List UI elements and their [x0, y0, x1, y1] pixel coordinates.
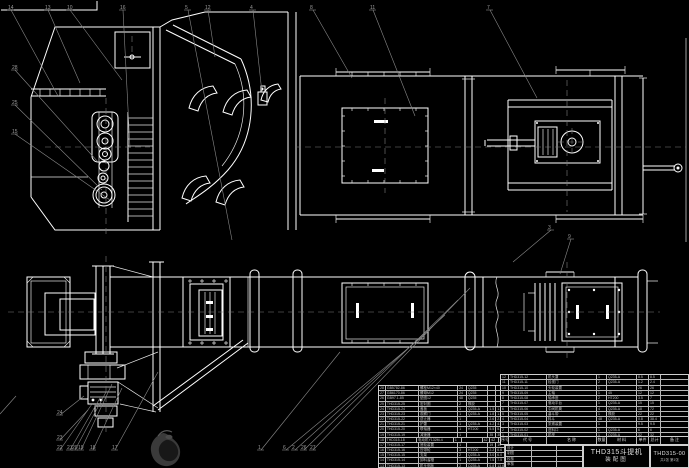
bom-cell-w2: 6 [649, 428, 661, 432]
bom-cell-qty: 1 [597, 375, 607, 379]
bom-cell-name: 料斗 [547, 417, 597, 421]
bom-cell-material: Q235 [467, 391, 488, 395]
bom-cell-w1: 7.5 [488, 458, 496, 462]
middle-casing [300, 68, 643, 223]
bom-cell-w2: 7.5 [496, 458, 505, 462]
bom-cell-w2: 12 [649, 391, 661, 395]
bom-cell-qty: 2 [597, 396, 607, 400]
callout-number: 27 [310, 445, 316, 451]
bom-cell-w2: 13.6 [496, 464, 505, 468]
bom-cell-w1: 5.5 [488, 427, 496, 431]
bom-cell-name: 螺母M12 [419, 391, 458, 395]
callout-leader [70, 10, 122, 80]
bom-cell-w1 [488, 386, 496, 390]
callout-leader [188, 10, 232, 240]
bom-header: 序号代 号名 称数量材 料单件总计备 注 [501, 437, 688, 444]
callout-number: 26 [301, 445, 307, 451]
callout-number: 15 [12, 129, 18, 135]
bom-cell-remark [661, 428, 688, 432]
plan-flanges [250, 270, 647, 352]
callout-leader [373, 10, 415, 116]
signature-blank [557, 462, 582, 467]
bom-cell-code: THD315-08 [509, 396, 547, 400]
bom-cell-w1: 42 [483, 438, 491, 442]
bom-header-cell: 单件 [637, 437, 649, 444]
callout-number: 3 [548, 225, 551, 231]
bom-cell-qty: 1 [458, 458, 467, 462]
bom-cell-w2: 6.6 [496, 448, 505, 452]
bom-header-cell: 总计 [649, 437, 661, 444]
bom-cell-w1: 9.5 [637, 422, 649, 426]
bom-cell-w1: 6 [637, 428, 649, 432]
plan-casing [92, 262, 164, 412]
bom-cell-code: THD315-21 [386, 422, 419, 426]
bom-cell-seq: 26 [379, 396, 386, 400]
bom-cell-remark [661, 417, 688, 421]
callout-number: 17 [112, 445, 118, 451]
bom-cell-w1 [488, 391, 496, 395]
bom-cell-remark [661, 401, 688, 405]
bom-cell-seq: 27 [379, 391, 386, 395]
callout-number: 6 [283, 445, 286, 451]
callout-leader [513, 230, 551, 262]
bom-cell-name: 驱动平台 [547, 401, 597, 405]
bom-cell-code: THD315-12 [509, 375, 547, 379]
bom-cell-seq: 10 [501, 386, 509, 390]
bom-cell-seq: 9 [501, 391, 509, 395]
plan-mid-panel [342, 283, 428, 343]
callout-number: 24 [57, 410, 63, 416]
bom-cell-material: Q235 [467, 396, 488, 400]
bom-cell-w2: 38.4 [649, 417, 661, 421]
bom-header-cell: 备 注 [661, 437, 688, 444]
bom-cell-name: 进料口 [547, 428, 597, 432]
door-hinge [374, 120, 388, 123]
bom-cell-code: THD315-22 [386, 417, 419, 421]
bom-cell-w2: 22 [649, 412, 661, 416]
bom-cell-seq: 11 [501, 380, 509, 384]
drawing-type: 装配图 [605, 457, 628, 464]
bom-cell-qty: 1 [458, 433, 467, 437]
bom-cell-material: Q235-A [467, 464, 488, 468]
buckets [182, 84, 281, 205]
bom-cell-w1 [488, 396, 496, 400]
callout-leader [253, 10, 262, 93]
bom-cell-name: 轴承座 [547, 396, 597, 400]
callout-number: 28 [12, 65, 18, 71]
bom-cell-w1: 15 [637, 401, 649, 405]
bom-cell-seq: 14 [379, 458, 386, 462]
callout-number: 22 [57, 445, 63, 451]
signature-label: 设计 [506, 446, 532, 450]
bom-cell-w1: 35 [488, 433, 496, 437]
callout-number: 2 [292, 445, 295, 451]
bom-cell-material [467, 443, 488, 447]
bom-cell-qty: 1 [454, 438, 462, 442]
bom-cell-w1: 1.5 [488, 407, 496, 411]
bom-cell-qty: 48 [458, 396, 467, 400]
bom-cell-name: 观察门 [419, 412, 458, 416]
bom-cell-material: Q235-A [467, 412, 488, 416]
callout-number: 8 [310, 5, 313, 11]
signature-grid: 设计制图校核审核 [505, 445, 583, 468]
bom-cell-remark [661, 422, 688, 426]
bom-cell-seq: 6 [501, 407, 509, 411]
bom-cell-w1: 6.8 [488, 464, 496, 468]
bom-cell-material [467, 433, 488, 437]
bom-cell-w2: 26 [649, 386, 661, 390]
bom-cell-name: 护罩 [419, 422, 458, 426]
bom-cell-w1: 22 [637, 412, 649, 416]
bom-table-right: 12THD315-12机头罩1Q235-A8.58.511THD315-11检视… [500, 374, 689, 437]
bom-cell-code: THD315-11 [509, 380, 547, 384]
bom-cell-material: Q235-A [607, 401, 637, 405]
bom-cell-seq: 5 [501, 412, 509, 416]
bom-cell-material: Q235-A [607, 380, 637, 384]
bom-cell-qty: 1 [597, 422, 607, 426]
bom-cell-name: 畚斗带 [547, 412, 597, 416]
bom-table-left: 28GB5782-86螺栓M12×4024Q23527GB6170-86螺母M1… [378, 385, 507, 468]
callout-number: 23 [57, 435, 63, 441]
watermark-stamp [151, 431, 180, 466]
bom-cell-qty: 2 [458, 402, 467, 406]
callout-number: 10 [67, 5, 73, 11]
bom-cell-code: THD315-15 [386, 453, 419, 457]
bom-cell-name: 机头罩 [547, 375, 597, 379]
bom-cell-seq: 3 [501, 422, 509, 426]
bom-cell-remark [661, 375, 688, 379]
callout-leader [560, 239, 571, 274]
signature-blank [532, 462, 557, 467]
bom-cell-qty: 1 [597, 386, 607, 390]
bom-cell-code: THD315-19 [386, 433, 419, 437]
bom-cell-w2: 72 [649, 407, 661, 411]
bom-cell-material: HT200 [467, 427, 488, 431]
bom-cell-code: GB6170-86 [386, 391, 419, 395]
callout-leader [11, 10, 58, 96]
callout-number: 16 [120, 5, 126, 11]
bom-cell-remark [661, 386, 688, 390]
bom-cell-name: 底轮装置 [419, 443, 458, 447]
bom-header-cell: 代 号 [509, 437, 547, 444]
bom-cell-w1: 1.2 [637, 380, 649, 384]
bom-cell-w1 [488, 402, 496, 406]
signature-blank [532, 446, 557, 450]
bom-cell-qty: 1 [597, 428, 607, 432]
bom-row: 13THD315-13机头侧板2Q235-A6.813.6 [379, 464, 506, 468]
signature-blank [532, 451, 557, 455]
bom-cell-name: 中间机筒 [547, 407, 597, 411]
bom-cell-seq: 16 [379, 448, 386, 452]
callout-number: 13 [45, 5, 51, 11]
callout-leader [123, 10, 130, 148]
signature-blank [557, 451, 582, 455]
bom-cell-code: THD315-14 [386, 458, 419, 462]
bom-cell-code: THD315-20 [386, 427, 419, 431]
callout-number: 4 [250, 5, 253, 11]
callout-leader [60, 410, 88, 440]
bom-cell-w1: 4.2 [488, 422, 496, 426]
plan-drive-assembly [80, 352, 158, 427]
bom-cell-material [462, 438, 482, 442]
bom-cell-name: 头轮装置 [547, 386, 597, 390]
bom-cell-w2: 6.0 [496, 453, 505, 457]
bom-cell-name: 密封圈 [419, 402, 458, 406]
bom-cell-remark [661, 391, 688, 395]
signature-row: 审核 [506, 462, 582, 467]
bom-cell-remark [661, 396, 688, 400]
bom-cell-w2: 9.5 [649, 422, 661, 426]
bom-cell-w1: 2.6 [488, 417, 496, 421]
callout-leader [15, 134, 110, 200]
callout-number: 18 [90, 445, 96, 451]
callout-leader [75, 392, 106, 450]
bom-cell-code: THD315-24 [386, 407, 419, 411]
bom-cell-material: Q235-A [467, 407, 488, 411]
bom-cell-seq: 21 [379, 422, 386, 426]
bom-cell-name: 电动机Y132M-4 [417, 438, 454, 442]
bom-cell-qty: 1 [458, 422, 467, 426]
bom-cell-qty: 1 [458, 417, 467, 421]
bom-cell-name: 螺栓M12×40 [419, 386, 458, 390]
bom-cell-qty: 3 [458, 448, 467, 452]
bom-cell-code: THD315-18 [386, 438, 417, 442]
bom-cell-remark [661, 380, 688, 384]
bom-cell-w1: 3.5 [637, 396, 649, 400]
bom-cell-w1: 2.2 [488, 448, 496, 452]
bom-cell-material [607, 386, 637, 390]
bom-cell-name: 减速器 [419, 433, 458, 437]
bom-cell-material: Q235-A [467, 422, 488, 426]
title-cell: THD315斗提机 装配图 [583, 445, 650, 468]
callout-leader [81, 384, 112, 450]
bom-cell-w2: 2.4 [649, 380, 661, 384]
bom-cell-qty: 1 [458, 407, 467, 411]
bom-cell-w2: 7 [649, 396, 661, 400]
bom-cell-seq: 24 [379, 407, 386, 411]
bom-cell-name: 机头侧板 [419, 464, 458, 468]
bom-cell-name: 卸料溜槽 [419, 458, 458, 462]
bom-cell-qty: 48 [597, 417, 607, 421]
bom-cell-name: 压带轮 [419, 448, 458, 452]
signature-label: 审核 [506, 462, 532, 467]
bom-cell-code: GB5782-86 [386, 386, 419, 390]
bom-cell-seq: 17 [379, 443, 386, 447]
bom-header-cell: 数量 [597, 437, 607, 444]
bom-cell-qty: 2 [458, 453, 467, 457]
bom-cell-name: 逆止器 [419, 417, 458, 421]
bom-cell-remark [661, 407, 688, 411]
bom-cell-seq: 2 [501, 428, 509, 432]
callout-number: 5 [185, 5, 188, 11]
signature-label: 制图 [506, 451, 532, 455]
bom-cell-material: Q235-A [607, 428, 637, 432]
bom-cell-seq: 23 [379, 412, 386, 416]
bom-cell-qty: 4 [597, 407, 607, 411]
bom-cell-code: THD315-13 [386, 464, 419, 468]
drive-section [485, 66, 682, 223]
bom-cell-qty: 1 [458, 412, 467, 416]
head-inspection-door [115, 32, 150, 68]
signature-blank [532, 457, 557, 461]
bom-cell-code: THD315-17 [386, 443, 419, 447]
callout-leader [60, 396, 84, 415]
callout-number: 1 [258, 445, 261, 451]
callout-number: 19 [78, 445, 84, 451]
bom-cell-code: THD315-10 [509, 386, 547, 390]
bom-cell-code: GB97.1-85 [386, 396, 419, 400]
bom-header-cell: 序号 [501, 437, 509, 444]
bom-cell-code: THD315-03 [509, 422, 547, 426]
bom-cell-seq: 22 [379, 417, 386, 421]
bom-cell-w1: 18 [637, 407, 649, 411]
bom-cell-seq: 12 [501, 375, 509, 379]
head-cover [160, 12, 251, 204]
bom-header-cell: 材 料 [607, 437, 637, 444]
bom-cell-seq: 18 [379, 438, 386, 442]
callout-number: 14 [8, 5, 14, 11]
bom-cell-code: THD315-02 [509, 428, 547, 432]
bom-cell-seq: 8 [501, 396, 509, 400]
callout-number: 12 [205, 5, 211, 11]
bom-cell-seq: 19 [379, 433, 386, 437]
callout-leader [313, 10, 352, 78]
bom-cell-material [607, 422, 637, 426]
bom-cell-seq: 13 [379, 464, 386, 468]
bom-cell-code: THD315-06 [509, 407, 547, 411]
bom-cell-remark [661, 412, 688, 416]
drawing-number: THD315-00 [653, 451, 685, 458]
callout-leader [208, 10, 215, 57]
bom-cell-material: 45 [607, 391, 637, 395]
bom-cell-name: 盖板 [419, 407, 458, 411]
bom-cell-w1: 1.8 [488, 412, 496, 416]
bom-cell-w1: 12 [637, 391, 649, 395]
bom-cell-w2: 15 [649, 401, 661, 405]
bom-cell-code: THD315-05 [509, 412, 547, 416]
bom-cell-code: THD315-16 [386, 448, 419, 452]
bom-cell-seq: 25 [379, 402, 386, 406]
bom-cell-name: 检视门 [547, 380, 597, 384]
callout-number: 9 [568, 234, 571, 240]
signature-blank [557, 457, 582, 461]
callout-leader [48, 10, 80, 83]
bom-cell-material: 橡胶 [607, 412, 637, 416]
signature-label: 校核 [506, 457, 532, 461]
bom-cell-material: HT200 [467, 448, 488, 452]
bom-cell-w1: 19 [488, 443, 496, 447]
bom-cell-material [467, 417, 488, 421]
bom-cell-material: HT200 [607, 396, 637, 400]
bom-cell-code: THD315-23 [386, 412, 419, 416]
bom-cell-material: Q235 [467, 386, 488, 390]
bom-cell-w2: 42 [490, 438, 498, 442]
bom-cell-seq: 15 [379, 453, 386, 457]
callout-number: 21 [67, 445, 73, 451]
bom-cell-material: Q235-A [607, 417, 637, 421]
signature-blank [557, 446, 582, 450]
bom-cell-material: 橡胶 [467, 402, 488, 406]
bom-cell-seq: 20 [379, 427, 386, 431]
bom-cell-material: Q235-A [467, 453, 488, 457]
callout-number: 7 [487, 5, 490, 11]
bom-cell-seq: 28 [379, 386, 386, 390]
bom-cell-name: 垫圈12 [419, 396, 458, 400]
bom-cell-qty: 1 [458, 427, 467, 431]
callout-leader [70, 398, 100, 450]
bom-cell-name: 主轴 [547, 391, 597, 395]
bom-cell-w1: 8.5 [637, 375, 649, 379]
bom-cell-material: Q235-A [467, 458, 488, 462]
sheet-info: 共1张 第1张 [660, 458, 679, 463]
bom-header-cell: 名 称 [547, 437, 597, 444]
bom-cell-w2: 8.5 [649, 375, 661, 379]
bom-cell-code: THD315-25 [386, 402, 419, 406]
bom-cell-qty: 2 [597, 380, 607, 384]
bom-cell-seq: 4 [501, 417, 509, 421]
bom-cell-qty: 1 [597, 401, 607, 405]
cad-sheet: 1413101651248117396226271171819202122232… [0, 0, 689, 468]
bom-cell-seq: 7 [501, 401, 509, 405]
bom-cell-qty: 1 [597, 391, 607, 395]
bom-cell-name: 支架 [419, 453, 458, 457]
bom-header-row: 序号代 号名 称数量材 料单件总计备 注 [500, 437, 689, 445]
callout-leader [490, 10, 537, 98]
drawing-number-cell: THD315-00 共1张 第1张 [650, 445, 689, 468]
bom-cell-code: THD315-07 [509, 401, 547, 405]
bom-cell-name: 联轴器 [419, 427, 458, 431]
bom-cell-name: 张紧装置 [547, 422, 597, 426]
bom-cell-qty: 2 [458, 464, 467, 468]
bom-cell-qty: 1 [458, 443, 467, 447]
bom-cell-qty: 24 [458, 391, 467, 395]
bom-cell-code: THD315-04 [509, 417, 547, 421]
bom-cell-material: Q235-A [607, 375, 637, 379]
callout-leader [261, 352, 340, 450]
bom-cell-w1: 3.0 [488, 453, 496, 457]
bom-cell-qty: 1 [597, 412, 607, 416]
bom-cell-code: THD315-09 [509, 391, 547, 395]
bom-cell-qty: 24 [458, 386, 467, 390]
bom-cell-w1: 26 [637, 386, 649, 390]
callout-number: 25 [12, 100, 18, 106]
callout-number: 11 [370, 5, 375, 11]
bom-cell-material: Q235-A [607, 407, 637, 411]
bom-cell-w1: 0.8 [637, 417, 649, 421]
callout-leader [15, 70, 98, 162]
door-latch [372, 169, 384, 172]
